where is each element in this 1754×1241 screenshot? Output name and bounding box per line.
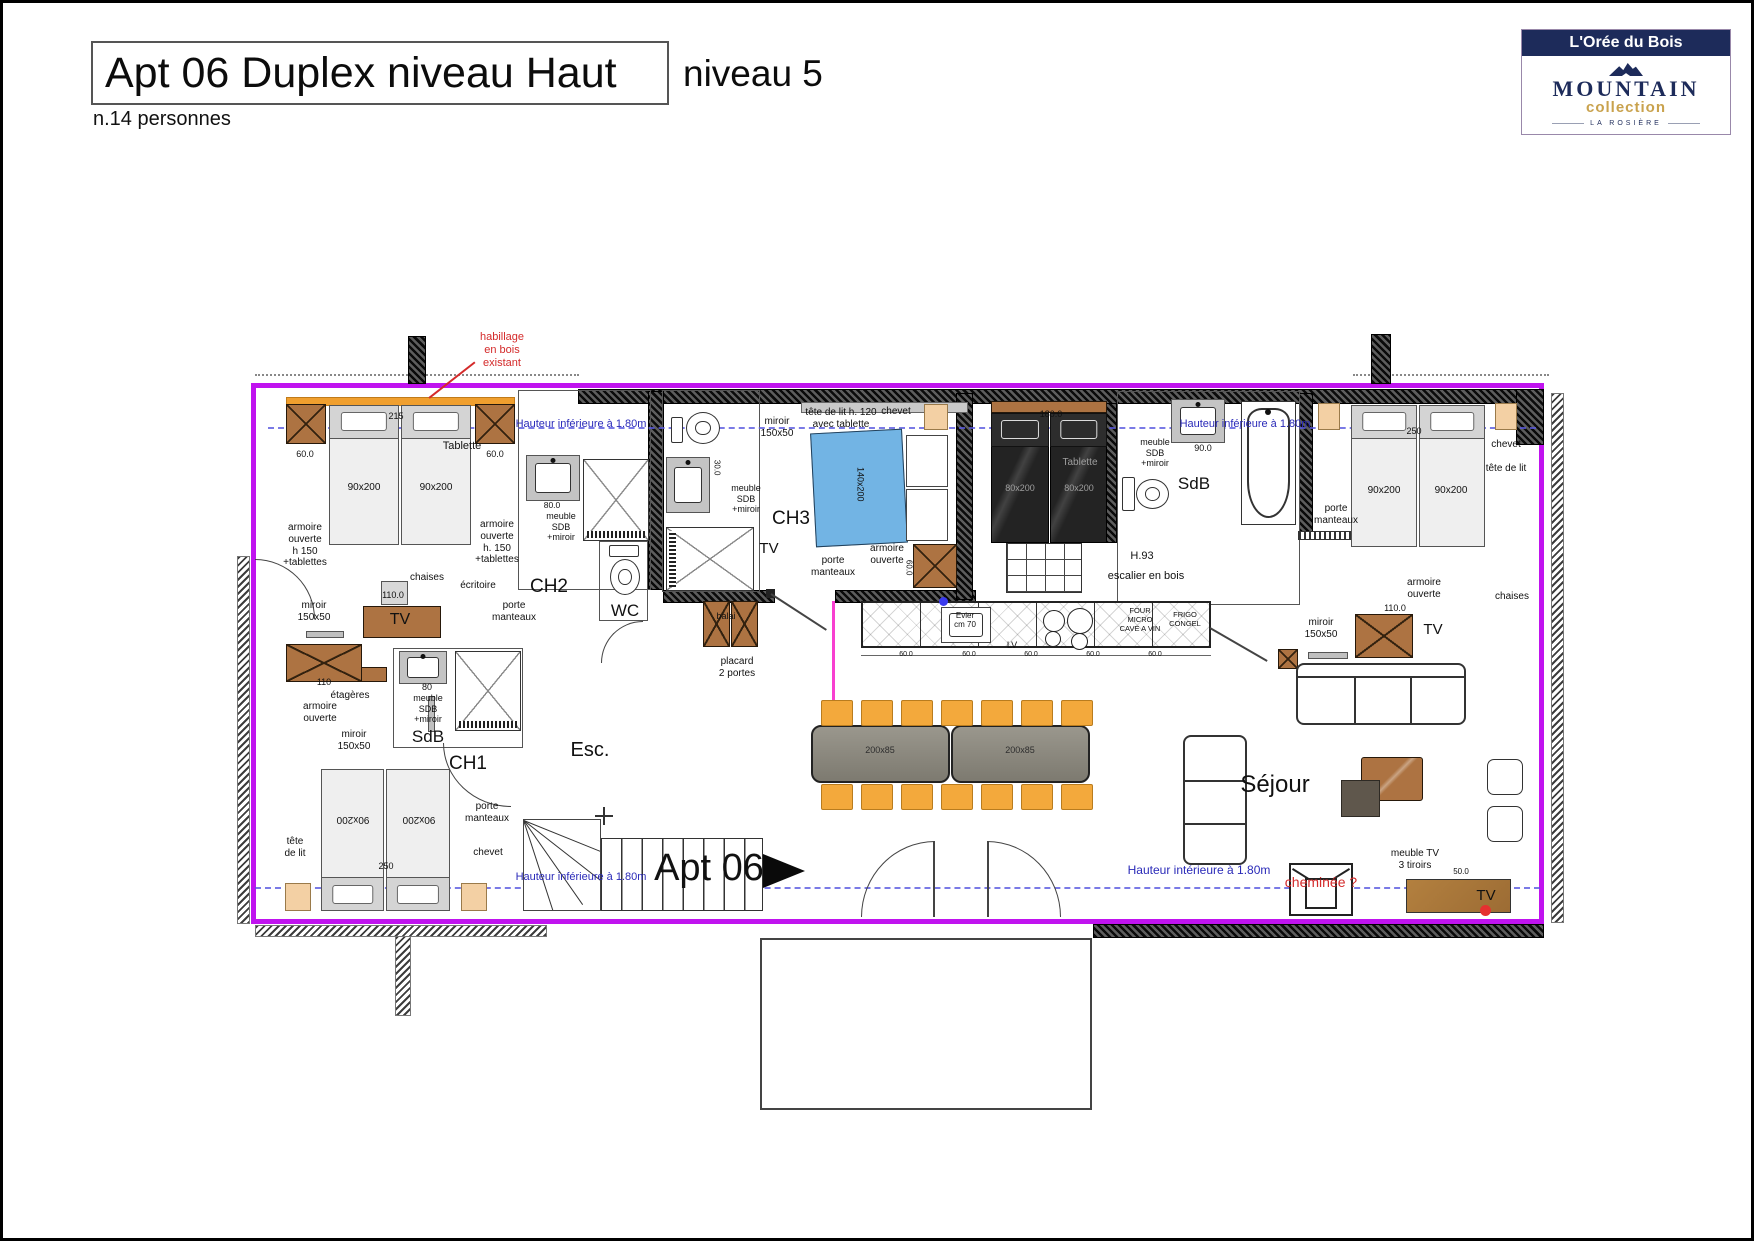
plan-label: miroir 150x50 (338, 729, 371, 753)
height-note: Hauteur intérieure à 1.80m (1128, 863, 1271, 877)
room-ch1: CH1 (449, 753, 487, 775)
plan-label: 80x200 (1064, 483, 1094, 494)
stool (1278, 649, 1298, 669)
plan-label: 60.0 (1086, 651, 1100, 659)
note-habillage: habillage en bois existant (480, 331, 524, 370)
chair (1021, 700, 1053, 726)
plan-label: 110 (317, 677, 331, 688)
bed (401, 405, 471, 545)
floor-plan-page: Apt 06 Duplex niveau Haut niveau 5 n.14 … (0, 0, 1754, 1241)
plan-label: 140x200 (855, 467, 866, 502)
plan-label: porte manteaux (1314, 503, 1358, 527)
nightstand (461, 883, 487, 911)
chair (1061, 700, 1093, 726)
plan-label: escalier en bois (1108, 570, 1184, 583)
bed (991, 413, 1049, 543)
plan-label: miroir 150x50 (298, 600, 331, 624)
coffee-table-small (1341, 780, 1380, 817)
floor-plan: habillage en bois existantHauteur inféri… (3, 3, 1754, 1241)
plan-label: miroir 150x50 (1305, 617, 1338, 641)
tv-label: TV (1476, 887, 1495, 905)
apt-label: Apt 06 (654, 846, 764, 891)
plan-label: miroir 150x50 (761, 416, 794, 440)
chair (861, 700, 893, 726)
mirror (306, 631, 344, 638)
balcony (760, 938, 1092, 1110)
chair (901, 700, 933, 726)
sofa-chaise (1183, 735, 1247, 865)
chair (981, 784, 1013, 810)
chair (901, 784, 933, 810)
wall (956, 393, 973, 600)
plan-label: armoire ouverte (303, 701, 337, 725)
shower (583, 459, 649, 541)
cooktop (1037, 606, 1095, 646)
note-cheminee: cheminée ? (1285, 874, 1357, 891)
plan-label: Tablette (1062, 457, 1097, 469)
plan-label: 90x200 (348, 482, 381, 494)
plan-label: 250 (1406, 426, 1421, 437)
wardrobe-icon (475, 404, 515, 444)
wall (1299, 393, 1313, 533)
toilet-tank (609, 545, 639, 557)
plan-label: armoire ouverte h 150 +tablettes (283, 522, 327, 569)
shelf (361, 667, 387, 682)
nightstand (1495, 403, 1517, 430)
shower (666, 527, 754, 591)
chair (821, 700, 853, 726)
toilet-tank (1122, 477, 1135, 511)
plan-label: 60.0 (1024, 651, 1038, 659)
height-note: Hauteur inférieure à 1.80m (516, 871, 647, 884)
direction-arrow (763, 854, 805, 888)
chair (981, 700, 1013, 726)
plan-label: 250 (378, 861, 393, 872)
exterior-wall (237, 556, 250, 924)
broom-closet (703, 601, 730, 647)
marker-dot (939, 597, 948, 606)
plan-label: FRIGO CONGEL (1169, 611, 1201, 629)
plan-label: 60.0 (486, 449, 504, 460)
towel-radiator (1298, 531, 1353, 540)
bed (321, 769, 384, 911)
plan-label: chaises (1495, 591, 1529, 603)
toilet-tank (671, 417, 683, 443)
armchair (1487, 806, 1523, 842)
stairs-winder (523, 819, 601, 911)
tub-faucet (1265, 409, 1271, 415)
plan-label: 30.0 (712, 460, 721, 476)
wall-stub (1371, 334, 1391, 384)
room-ch3: CH3 (772, 508, 810, 530)
wardrobe-icon (913, 544, 957, 588)
toilet (610, 559, 640, 595)
plan-label: chaises (410, 572, 444, 584)
plan-label: meuble SDB +miroir (731, 483, 761, 515)
plan-label: 90x200 (337, 813, 370, 825)
plan-label: balai (716, 611, 735, 622)
bed (386, 769, 450, 911)
bed-side-panel (906, 435, 948, 487)
plan-label: meuble SDB +miroir (413, 693, 443, 725)
plan-label: chevet (473, 847, 502, 859)
plan-label: écritoire (460, 580, 496, 592)
plan-label: chevet (881, 406, 910, 418)
plan-label: 90x200 (420, 482, 453, 494)
plan-label: FOUR MICRO CAVE A VIN (1120, 607, 1161, 634)
door-leaf (987, 841, 989, 917)
plan-label: 110.0 (382, 590, 404, 601)
bathroom-sink (399, 651, 447, 684)
plan-label: étagères (331, 690, 370, 702)
marker-dot-red (1480, 905, 1491, 916)
bed (1419, 405, 1485, 547)
plan-label: 110.0 (1384, 603, 1406, 614)
bed-side-panel (906, 489, 948, 541)
plan-label: armoire ouverte (870, 543, 904, 567)
wooden-stairs (1006, 543, 1082, 593)
height-note: Hauteur inférieure à 1.80m (516, 418, 647, 431)
wall (1093, 924, 1544, 938)
plan-label: 90x200 (1368, 485, 1401, 497)
nightstand (285, 883, 311, 911)
plan-label: Tablette (443, 440, 482, 453)
room-wc: WC (611, 601, 639, 621)
bed (1050, 413, 1107, 543)
room-esc: Esc. (571, 739, 610, 763)
chair (1021, 784, 1053, 810)
plan-label: 200x85 (865, 745, 895, 756)
nightstand (924, 404, 948, 430)
room-sejour: Séjour (1240, 771, 1309, 799)
chair (861, 784, 893, 810)
plan-label: 80 (422, 682, 432, 693)
mirror (1308, 652, 1348, 659)
plan-label: 80x200 (1005, 483, 1035, 494)
chair (941, 784, 973, 810)
toilet (1136, 479, 1169, 509)
plan-label: placard 2 portes (719, 656, 755, 680)
plan-label: porte manteaux (811, 555, 855, 579)
plan-label: porte manteaux (492, 600, 536, 624)
plan-label: 60.0 (904, 560, 913, 576)
plan-label: 60.0 (962, 651, 976, 659)
sofa (1296, 663, 1466, 725)
wardrobe-icon (286, 404, 326, 444)
plan-label: H.93 (1130, 550, 1153, 563)
plan-label: tête de lit h. 120 avec tablette (805, 407, 876, 431)
plan-label: Evier cm 70 (954, 611, 976, 630)
height-note: Hauteur inférieure à 1.80m (1180, 418, 1311, 431)
plan-label: 60.0 (899, 651, 913, 659)
plan-label: 90x200 (1435, 485, 1468, 497)
room-sdb: SdB (412, 727, 444, 747)
chair (1061, 784, 1093, 810)
plan-label: meuble SDB +miroir (546, 511, 576, 543)
room-sdb: SdB (1178, 474, 1210, 494)
plan-label: meuble SDB +miroir (1140, 437, 1170, 469)
cross-mark (603, 807, 605, 825)
bed (329, 405, 399, 545)
bathroom-sink (666, 457, 710, 513)
dining-chairs-row (821, 700, 1093, 726)
plan-label: armoire ouverte (1407, 577, 1441, 601)
plan-label: 80.0 (544, 500, 561, 510)
wall-stub (395, 936, 411, 1016)
plan-label: LV (1007, 640, 1017, 651)
nightstand (1318, 403, 1340, 430)
plan-label: tête de lit (284, 836, 305, 860)
plan-label: chevet (1491, 439, 1520, 451)
plan-label: 215 (388, 411, 403, 422)
door-leaf (933, 841, 935, 917)
dining-chairs-row (821, 784, 1093, 810)
plan-label: porte manteaux (465, 801, 509, 825)
armchair (1487, 759, 1523, 795)
plan-label: tête de lit (1486, 463, 1527, 475)
bathroom-sink (526, 455, 580, 501)
room-ch2: CH2 (530, 576, 568, 598)
chair (821, 784, 853, 810)
wall (1516, 389, 1544, 445)
exterior-wall (1551, 393, 1564, 923)
plan-label: 200x85 (1005, 745, 1035, 756)
tv-label: TV (759, 540, 778, 558)
chair (941, 700, 973, 726)
closet (731, 601, 758, 647)
plan-label: meuble TV 3 tiroirs (1391, 848, 1439, 872)
toilet (686, 412, 720, 444)
tv-unit (1355, 614, 1413, 658)
tv-label: TV (1423, 621, 1442, 639)
shower (455, 651, 521, 731)
tv-label: TV (390, 611, 410, 630)
plan-label: 90.0 (1194, 443, 1212, 454)
wall-stub (408, 336, 426, 384)
plan-label: armoire ouverte h. 150 +tablettes (475, 519, 519, 566)
plan-label: 90x200 (403, 813, 436, 825)
plan-label: 60.0 (296, 449, 314, 460)
plan-label: 180.0 (1040, 409, 1063, 420)
plan-label: 50.0 (1453, 867, 1469, 876)
plan-label: 60.0 (1148, 651, 1162, 659)
